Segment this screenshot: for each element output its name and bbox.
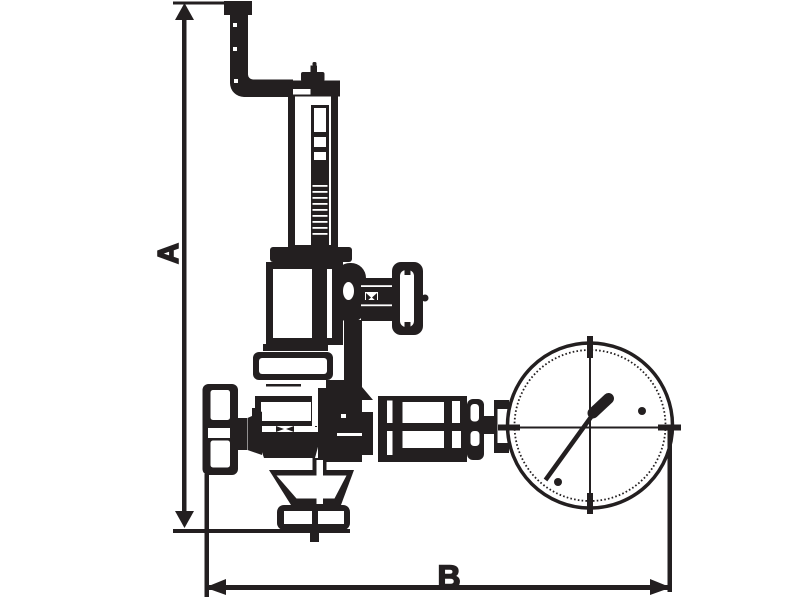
- svg-text:B: B: [437, 559, 460, 595]
- svg-text:A: A: [153, 243, 185, 264]
